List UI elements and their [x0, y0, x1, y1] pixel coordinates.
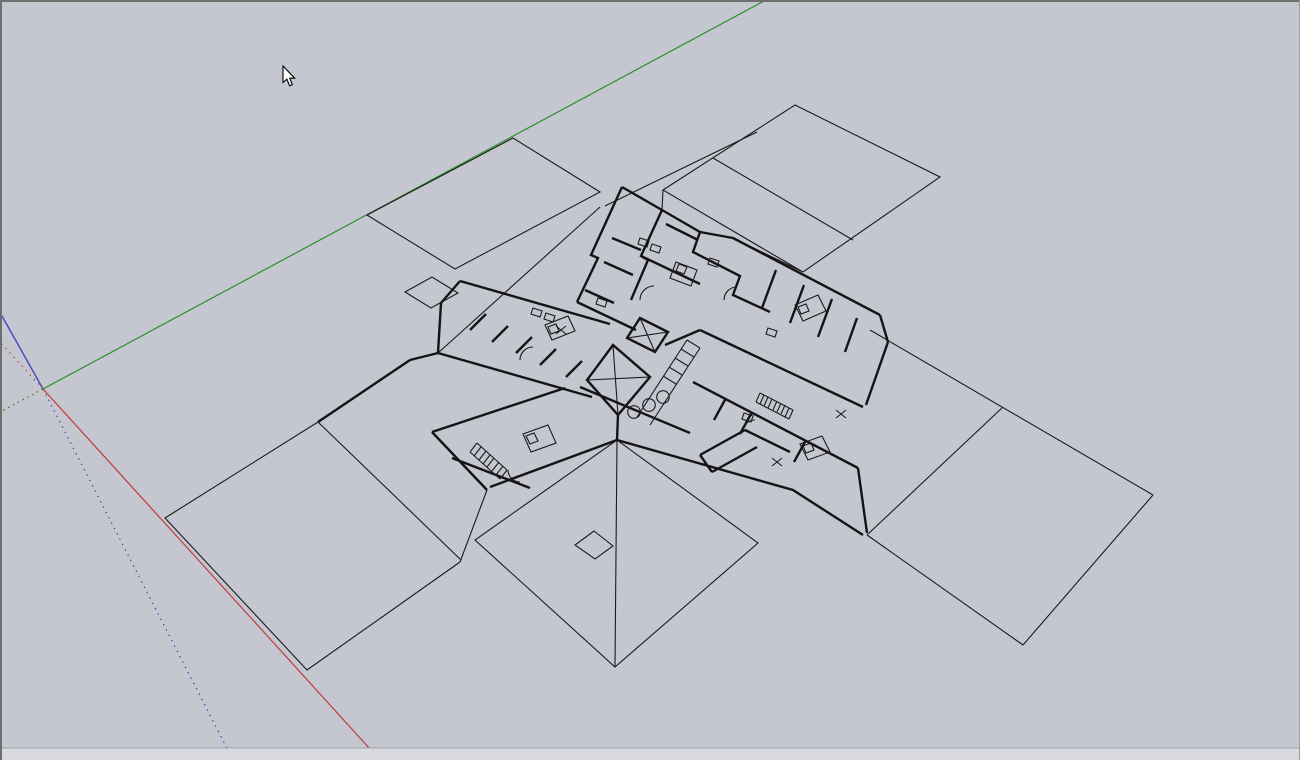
viewport-canvas[interactable]: Perspective wireframe view of a cross-sh…	[0, 0, 1300, 760]
left-border	[0, 0, 2, 760]
viewport-background	[0, 0, 1300, 760]
bottom-strip	[0, 748, 1300, 760]
top-border	[0, 0, 1300, 2]
modeling-viewport[interactable]: Perspective wireframe view of a cross-sh…	[0, 0, 1300, 760]
